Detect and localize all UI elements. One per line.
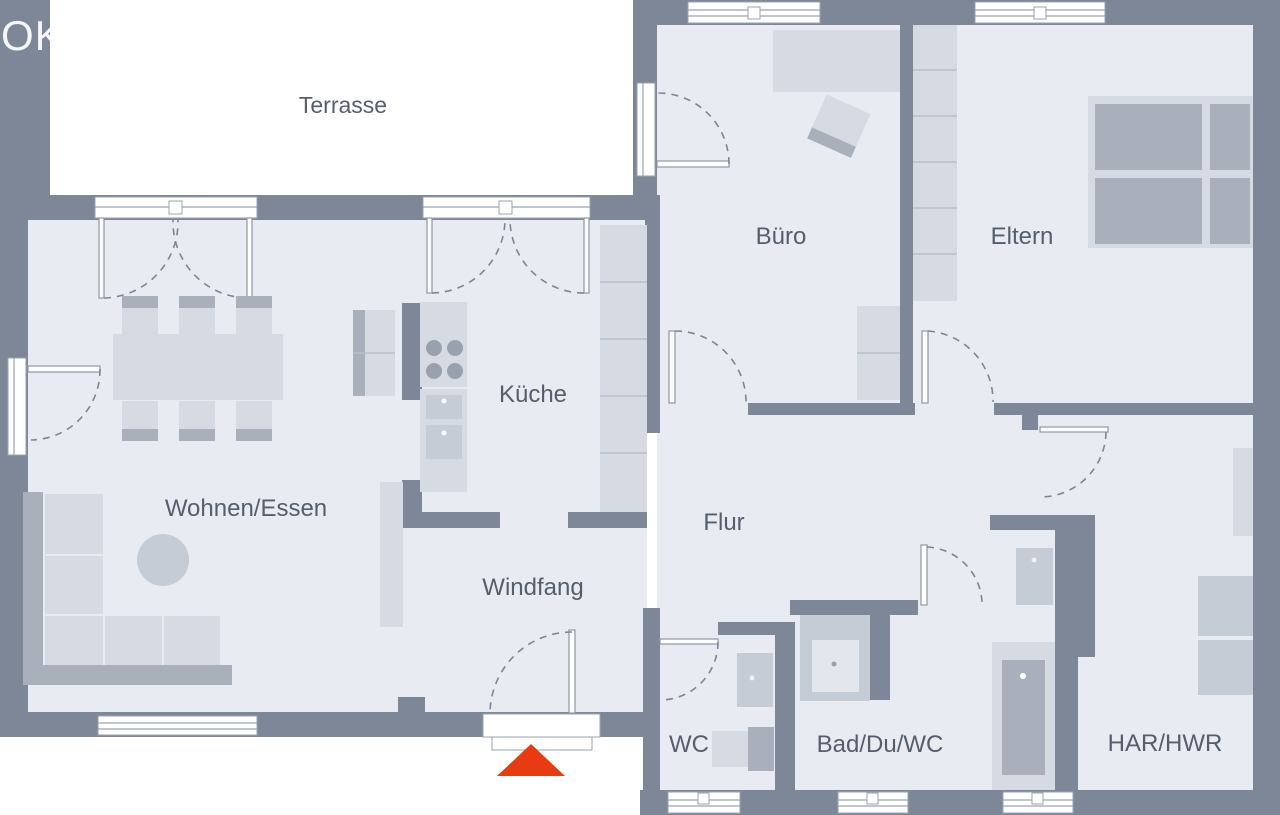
room-label-terrasse: Terrasse [299,92,387,118]
floor-plan-svg: Terrasse Büro Eltern Küche Wohnen/Essen … [0,0,1280,815]
window-wohnen-sued [98,716,257,735]
chair-backrest [179,296,215,308]
floor-plan-page: Terrasse Büro Eltern Küche Wohnen/Essen … [0,0,1280,815]
stove-burner [426,340,442,356]
wall-segment [900,25,913,403]
sofa-cushion [164,616,220,665]
sofa-cushion [105,616,162,665]
window-bad [838,792,908,813]
wall-segment [775,622,795,790]
chair-backrest [236,296,272,308]
window-handle [1034,7,1046,19]
toilet-tank [748,727,774,771]
chair-backrest [122,296,158,308]
kitchen-counter [420,302,467,332]
window-wc [668,792,740,813]
washbasin [737,653,773,707]
door-handle [499,201,512,214]
door-leaf [584,218,589,293]
chair-backrest [122,429,158,441]
sink-faucet [442,399,447,404]
wall-segment [645,220,660,433]
bed-pillow [1210,104,1250,170]
chair-backrest [236,429,272,441]
window-handle [748,7,760,19]
sofa-cushion [45,494,103,554]
wall-segment [1253,0,1280,815]
desk [773,30,900,92]
door-leaf [669,331,675,403]
wall-segment [868,615,890,700]
wall-segment [568,512,647,528]
sofa-cushion [45,556,103,614]
tall-cabinet [600,225,647,512]
dishwasher [426,425,462,459]
stove-burner [447,363,463,379]
stove-burner [447,340,463,356]
basin-drain [1032,558,1037,563]
wall-segment [748,403,915,415]
door-leaf [660,639,718,644]
dining-set [113,296,283,441]
door-frame [8,358,26,455]
wall-segment [1078,515,1095,657]
sofa-cushion [45,616,103,665]
door-frame [637,83,655,176]
door-leaf [657,161,729,167]
window-har [1003,792,1073,813]
chair-backrest [179,429,215,441]
wall-segment [994,403,1253,415]
wall-segment [0,0,50,220]
door-handle [169,201,182,214]
door-leaf [922,331,928,403]
wardrobe [913,25,957,301]
door-leaf [1040,427,1108,432]
washbasin [1016,548,1053,605]
door-leaf [28,366,100,372]
window-handle [698,793,709,804]
room-label-buero: Büro [756,223,807,250]
door-leaf [99,218,104,298]
window-handle [1032,793,1043,804]
bed-mattress [1095,104,1202,170]
window-eltern [975,2,1105,23]
dining-table [113,334,283,400]
basin-drain [750,676,755,681]
door-leaf [569,630,575,713]
door-leaf [247,218,252,298]
wall-segment [1055,515,1078,790]
kitchen-stove [420,332,467,387]
window-frame [98,716,257,735]
bed-pillow [1210,178,1250,244]
window-handle [867,793,878,804]
room-label-wohnen-essen: Wohnen/Essen [165,495,327,522]
stove-burner [426,363,442,379]
room-label-flur: Flur [703,509,744,536]
wall-segment [1022,415,1038,430]
bed-mattress [1095,178,1202,244]
sofa-frame [23,492,43,685]
room-label-windfang: Windfang [482,574,583,601]
wall-segment [790,600,918,615]
side-table [137,534,189,586]
room-label-wc: WC [669,731,709,758]
door-leaf [427,218,432,293]
shelf [1233,448,1253,536]
shower-drain [832,662,837,667]
sofa-frame [23,665,232,685]
tub-drain [1020,673,1026,679]
double-bed [1088,96,1253,248]
toilet [712,731,748,767]
wall-segment [398,697,425,712]
door-frame [483,714,600,737]
wall-segment [643,608,660,790]
bathtub [992,642,1055,790]
appliance-knob [442,431,447,436]
room-label-kueche: Küche [499,381,567,408]
sideboard [380,482,403,627]
wall-segment [402,303,422,400]
window-buero [688,2,820,23]
washing-machine [1198,576,1253,636]
room-label-bad-du-wc: Bad/Du/WC [817,731,944,758]
room-label-har-hwr: HAR/HWR [1108,730,1223,757]
door-threshold [492,737,592,750]
room-label-eltern: Eltern [991,223,1054,250]
dryer [1198,640,1253,695]
wall-segment [402,480,422,528]
door-leaf [921,545,927,605]
